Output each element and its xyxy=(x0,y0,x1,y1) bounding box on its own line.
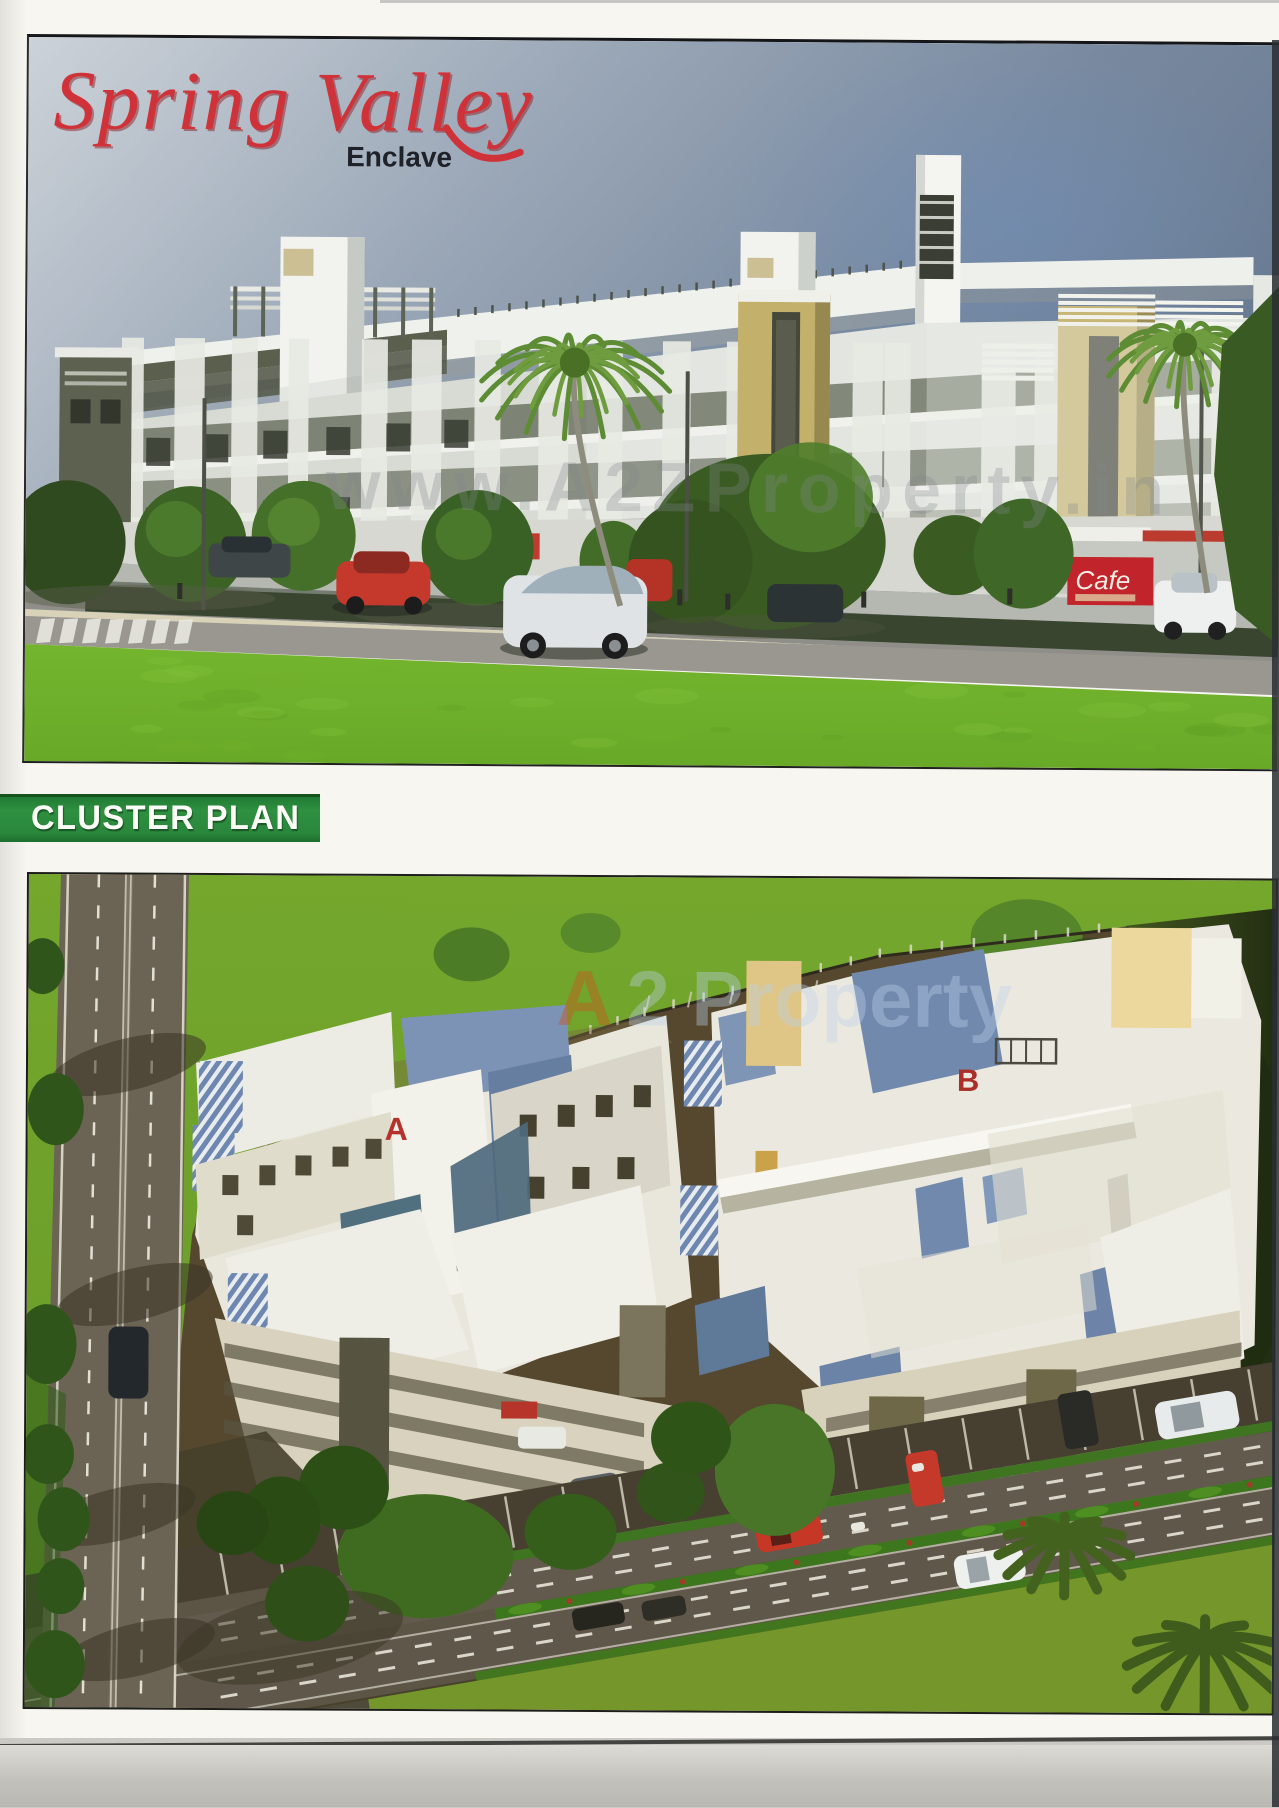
svg-text:Enclave: Enclave xyxy=(346,141,452,173)
svg-text:Cafe: Cafe xyxy=(1075,565,1130,595)
svg-text:Spring Valley: Spring Valley xyxy=(53,54,532,150)
svg-text:A: A xyxy=(556,954,613,1042)
svg-text:2 Property: 2 Property xyxy=(626,954,1012,1044)
svg-text:A: A xyxy=(385,1111,408,1147)
svg-text:B: B xyxy=(957,1063,980,1098)
